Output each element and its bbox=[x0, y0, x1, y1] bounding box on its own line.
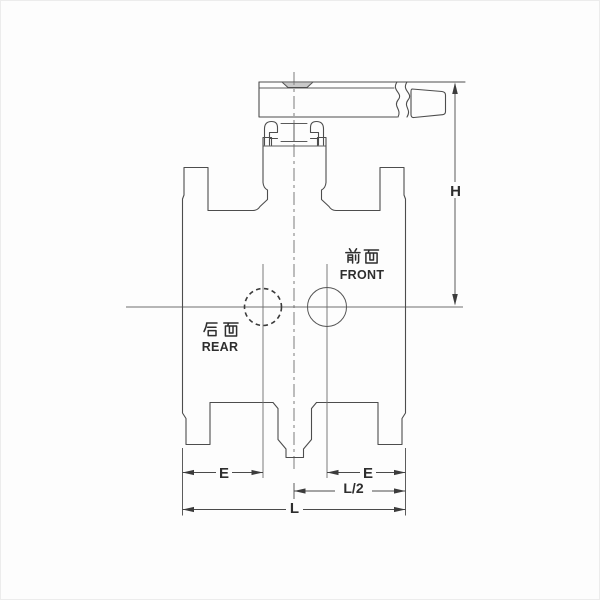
body-right-flange bbox=[378, 168, 406, 445]
dim-H-arrow-bottom bbox=[452, 294, 458, 306]
dim-H: H bbox=[447, 83, 464, 306]
dim-L2: L/2 bbox=[294, 479, 406, 496]
drain-boss bbox=[273, 403, 317, 458]
handle-grip-end bbox=[411, 89, 446, 118]
cjk-glyph-qian bbox=[346, 249, 360, 263]
dim-E-left-arrow-l bbox=[183, 470, 195, 475]
dim-H-label: H bbox=[450, 183, 461, 200]
dimensions: H E E bbox=[183, 83, 465, 518]
ports bbox=[245, 264, 347, 478]
neck-left bbox=[208, 146, 268, 211]
handle-assembly bbox=[259, 82, 465, 118]
rear-label: REAR bbox=[202, 323, 239, 354]
body-left-flange bbox=[183, 168, 211, 445]
cjk-glyph-mian-2 bbox=[224, 323, 238, 336]
dim-E-left-arrow-r bbox=[252, 470, 264, 475]
valve-drawing-svg: H E E bbox=[1, 1, 600, 600]
front-label: FRONT bbox=[340, 249, 385, 282]
dim-L-label: L bbox=[290, 500, 299, 517]
rear-label-cjk-glyphs bbox=[204, 323, 238, 336]
dim-E-left: E bbox=[183, 462, 264, 482]
stem-section bbox=[281, 124, 307, 142]
dim-L2-arrow-l bbox=[294, 488, 306, 493]
dim-L: L bbox=[183, 499, 406, 517]
front-label-text: FRONT bbox=[340, 268, 385, 282]
dim-E-right-arrow-r bbox=[394, 470, 406, 475]
dim-L-arrow-l bbox=[183, 507, 195, 512]
drawing-canvas: H E E bbox=[0, 0, 600, 600]
dim-L-arrow-r bbox=[394, 507, 406, 512]
handle-break-lines bbox=[395, 82, 409, 117]
rear-label-text: REAR bbox=[202, 340, 239, 354]
cjk-glyph-hou bbox=[204, 323, 217, 336]
dim-H-arrow-top bbox=[452, 83, 458, 95]
dim-E-left-label: E bbox=[219, 465, 229, 482]
dim-L2-arrow-r bbox=[394, 488, 406, 493]
neck-right bbox=[322, 146, 381, 211]
handle-bar bbox=[259, 82, 397, 117]
stem-gland bbox=[265, 122, 324, 146]
dim-L2-label: L/2 bbox=[343, 480, 363, 496]
front-label-cjk-glyphs bbox=[346, 249, 379, 263]
cjk-glyph-mian bbox=[364, 250, 378, 263]
dim-E-right-arrow-l bbox=[327, 470, 339, 475]
